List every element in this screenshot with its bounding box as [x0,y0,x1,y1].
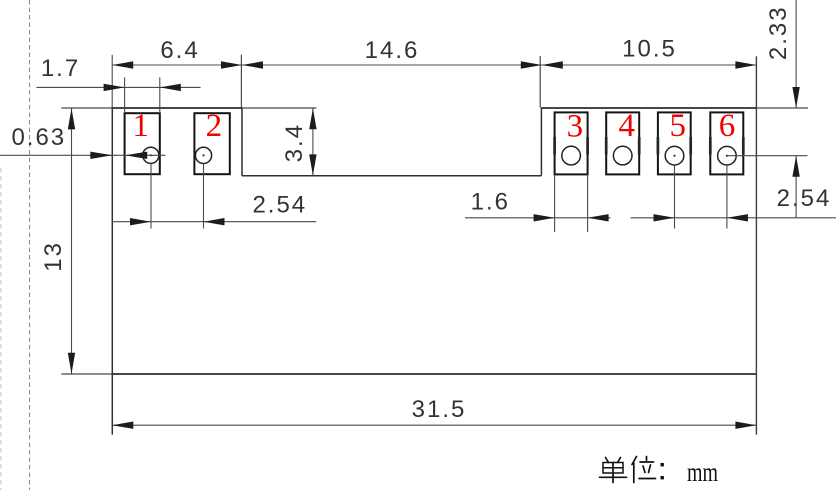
svg-text:31.5: 31.5 [412,396,467,423]
svg-text:3: 3 [567,108,584,144]
svg-text:mm: mm [687,457,718,487]
svg-text:1.6: 1.6 [471,188,510,215]
svg-text:4: 4 [619,108,636,144]
svg-text:6: 6 [719,108,736,144]
svg-text:2.33: 2.33 [765,5,792,60]
svg-text:6.4: 6.4 [160,37,199,64]
svg-text:0.63: 0.63 [11,124,66,151]
svg-text:2.54: 2.54 [252,192,307,219]
svg-text:2: 2 [206,108,223,144]
svg-text:5: 5 [670,108,687,144]
svg-text:1.7: 1.7 [41,55,80,82]
svg-text:13: 13 [40,241,67,272]
svg-text:3.4: 3.4 [281,123,308,162]
svg-text:2.54: 2.54 [777,185,832,212]
svg-text:1: 1 [133,108,150,144]
svg-text:10.5: 10.5 [622,35,677,62]
svg-text:14.6: 14.6 [365,37,420,64]
